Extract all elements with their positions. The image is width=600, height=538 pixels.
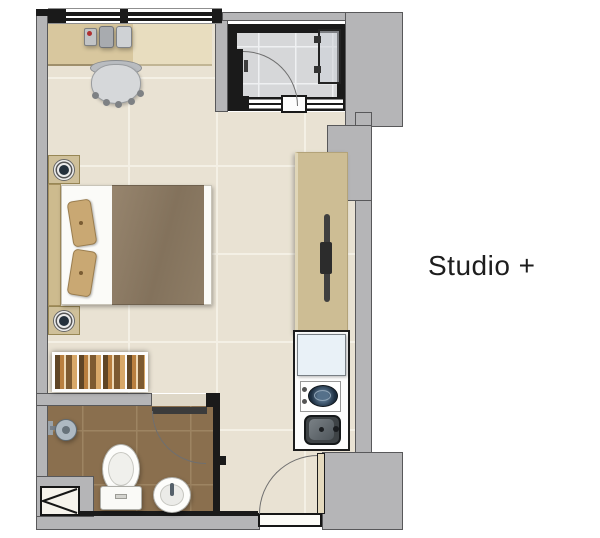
- wall-top-right-band: [222, 12, 350, 21]
- bathroom-door-threshold: [152, 394, 206, 406]
- wall-bathroom-right: [213, 393, 220, 515]
- wall-entry-block: [322, 452, 403, 530]
- wall-bathroom-stub: [213, 456, 226, 465]
- shower-glass-hinge: [314, 66, 321, 73]
- wall-window-jamb: [215, 12, 228, 112]
- pillow-button: [79, 221, 83, 225]
- pillow-button: [79, 271, 83, 275]
- desk-organizer-accent: [87, 31, 92, 36]
- shower-glass-hinge: [314, 36, 321, 43]
- entrance-threshold: [258, 513, 322, 527]
- wardrobe: [52, 352, 148, 392]
- wall-shower-left: [228, 24, 237, 111]
- chair-wheel: [103, 99, 110, 106]
- shaft-symbol: [42, 488, 78, 514]
- shower-glass-panel: [318, 29, 341, 84]
- window-glazing-bar: [128, 12, 212, 16]
- entrance-door-leaf: [317, 453, 325, 514]
- desk-books: [99, 26, 114, 48]
- service-shaft: [40, 486, 80, 516]
- wall-bathroom-top: [36, 393, 152, 406]
- window-glazing-bar: [128, 18, 212, 21]
- nightstand-lamp-center: [59, 316, 69, 326]
- toilet-bowl-inner: [108, 452, 134, 486]
- chair-wheel: [137, 90, 144, 97]
- desk-extension: [133, 24, 212, 66]
- wall-bottom: [36, 515, 260, 530]
- window-glazing-bar: [66, 18, 120, 21]
- chair-wheel: [115, 101, 122, 108]
- sink-faucet: [333, 426, 339, 432]
- window-end-cap: [48, 9, 66, 23]
- floor-plan: Studio +: [0, 0, 600, 538]
- wall-right-block-top: [345, 12, 403, 127]
- cooktop-knob: [302, 399, 307, 404]
- window-glazing-bar: [66, 12, 120, 16]
- bed-headboard: [48, 184, 61, 306]
- toilet-flush-button: [115, 494, 127, 499]
- chair-wheel: [92, 92, 99, 99]
- desk-books: [116, 26, 132, 48]
- window-end-cap: [212, 9, 222, 23]
- unit-type-label: Studio +: [428, 250, 536, 282]
- refrigerator: [297, 334, 346, 376]
- bed-blanket: [112, 185, 204, 305]
- shower-head-center: [62, 426, 70, 434]
- window: [48, 8, 222, 24]
- cooktop-burner-ring: [314, 390, 331, 401]
- cooktop-knob: [302, 387, 307, 392]
- wall-left: [36, 9, 48, 530]
- counter-faucet-base: [320, 242, 332, 274]
- washbasin-faucet: [170, 483, 174, 496]
- sink-drain: [319, 427, 324, 432]
- nightstand-lamp-center: [59, 165, 69, 175]
- window-mullion: [120, 9, 128, 23]
- chair-wheel: [128, 98, 135, 105]
